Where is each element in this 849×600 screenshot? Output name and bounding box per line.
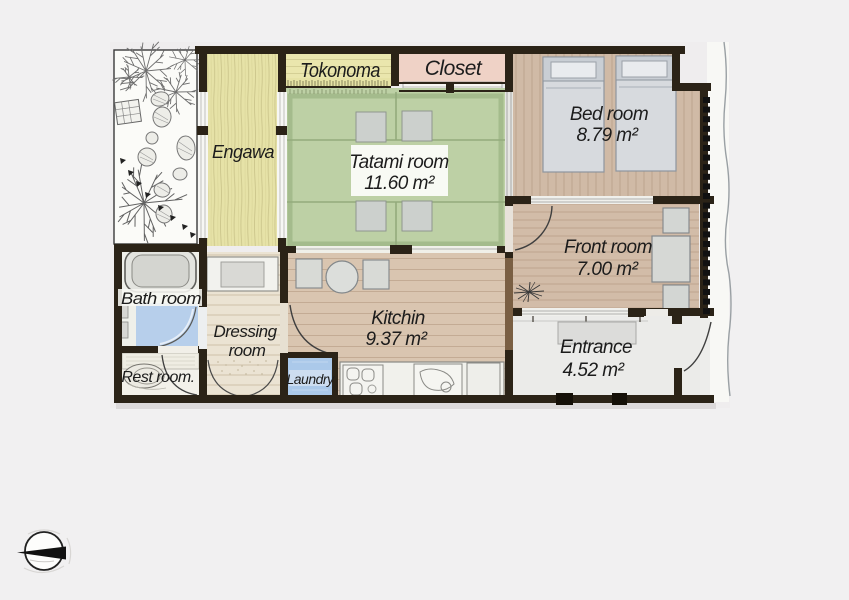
svg-text:Closet: Closet — [425, 57, 483, 80]
svg-text:9.37 m²: 9.37 m² — [366, 329, 428, 350]
svg-text:Kitchin: Kitchin — [371, 308, 425, 329]
svg-text:Bath room: Bath room — [121, 289, 201, 308]
svg-text:Rest room.: Rest room. — [121, 369, 194, 386]
svg-text:7.00 m²: 7.00 m² — [577, 259, 639, 280]
svg-text:Laundry: Laundry — [287, 371, 335, 387]
svg-text:8.79 m²: 8.79 m² — [577, 125, 639, 146]
svg-text:Tatami room: Tatami room — [349, 152, 448, 173]
svg-text:Bed room: Bed room — [570, 104, 648, 125]
svg-text:Dressing: Dressing — [213, 322, 277, 341]
svg-text:Tokonoma: Tokonoma — [300, 60, 380, 82]
svg-text:4.52 m²: 4.52 m² — [563, 360, 625, 381]
svg-text:Engawa: Engawa — [212, 142, 275, 162]
svg-text:Entrance: Entrance — [560, 337, 632, 358]
svg-text:Front room: Front room — [564, 237, 652, 258]
svg-text:room: room — [229, 341, 266, 360]
svg-text:11.60 m²: 11.60 m² — [364, 173, 435, 194]
